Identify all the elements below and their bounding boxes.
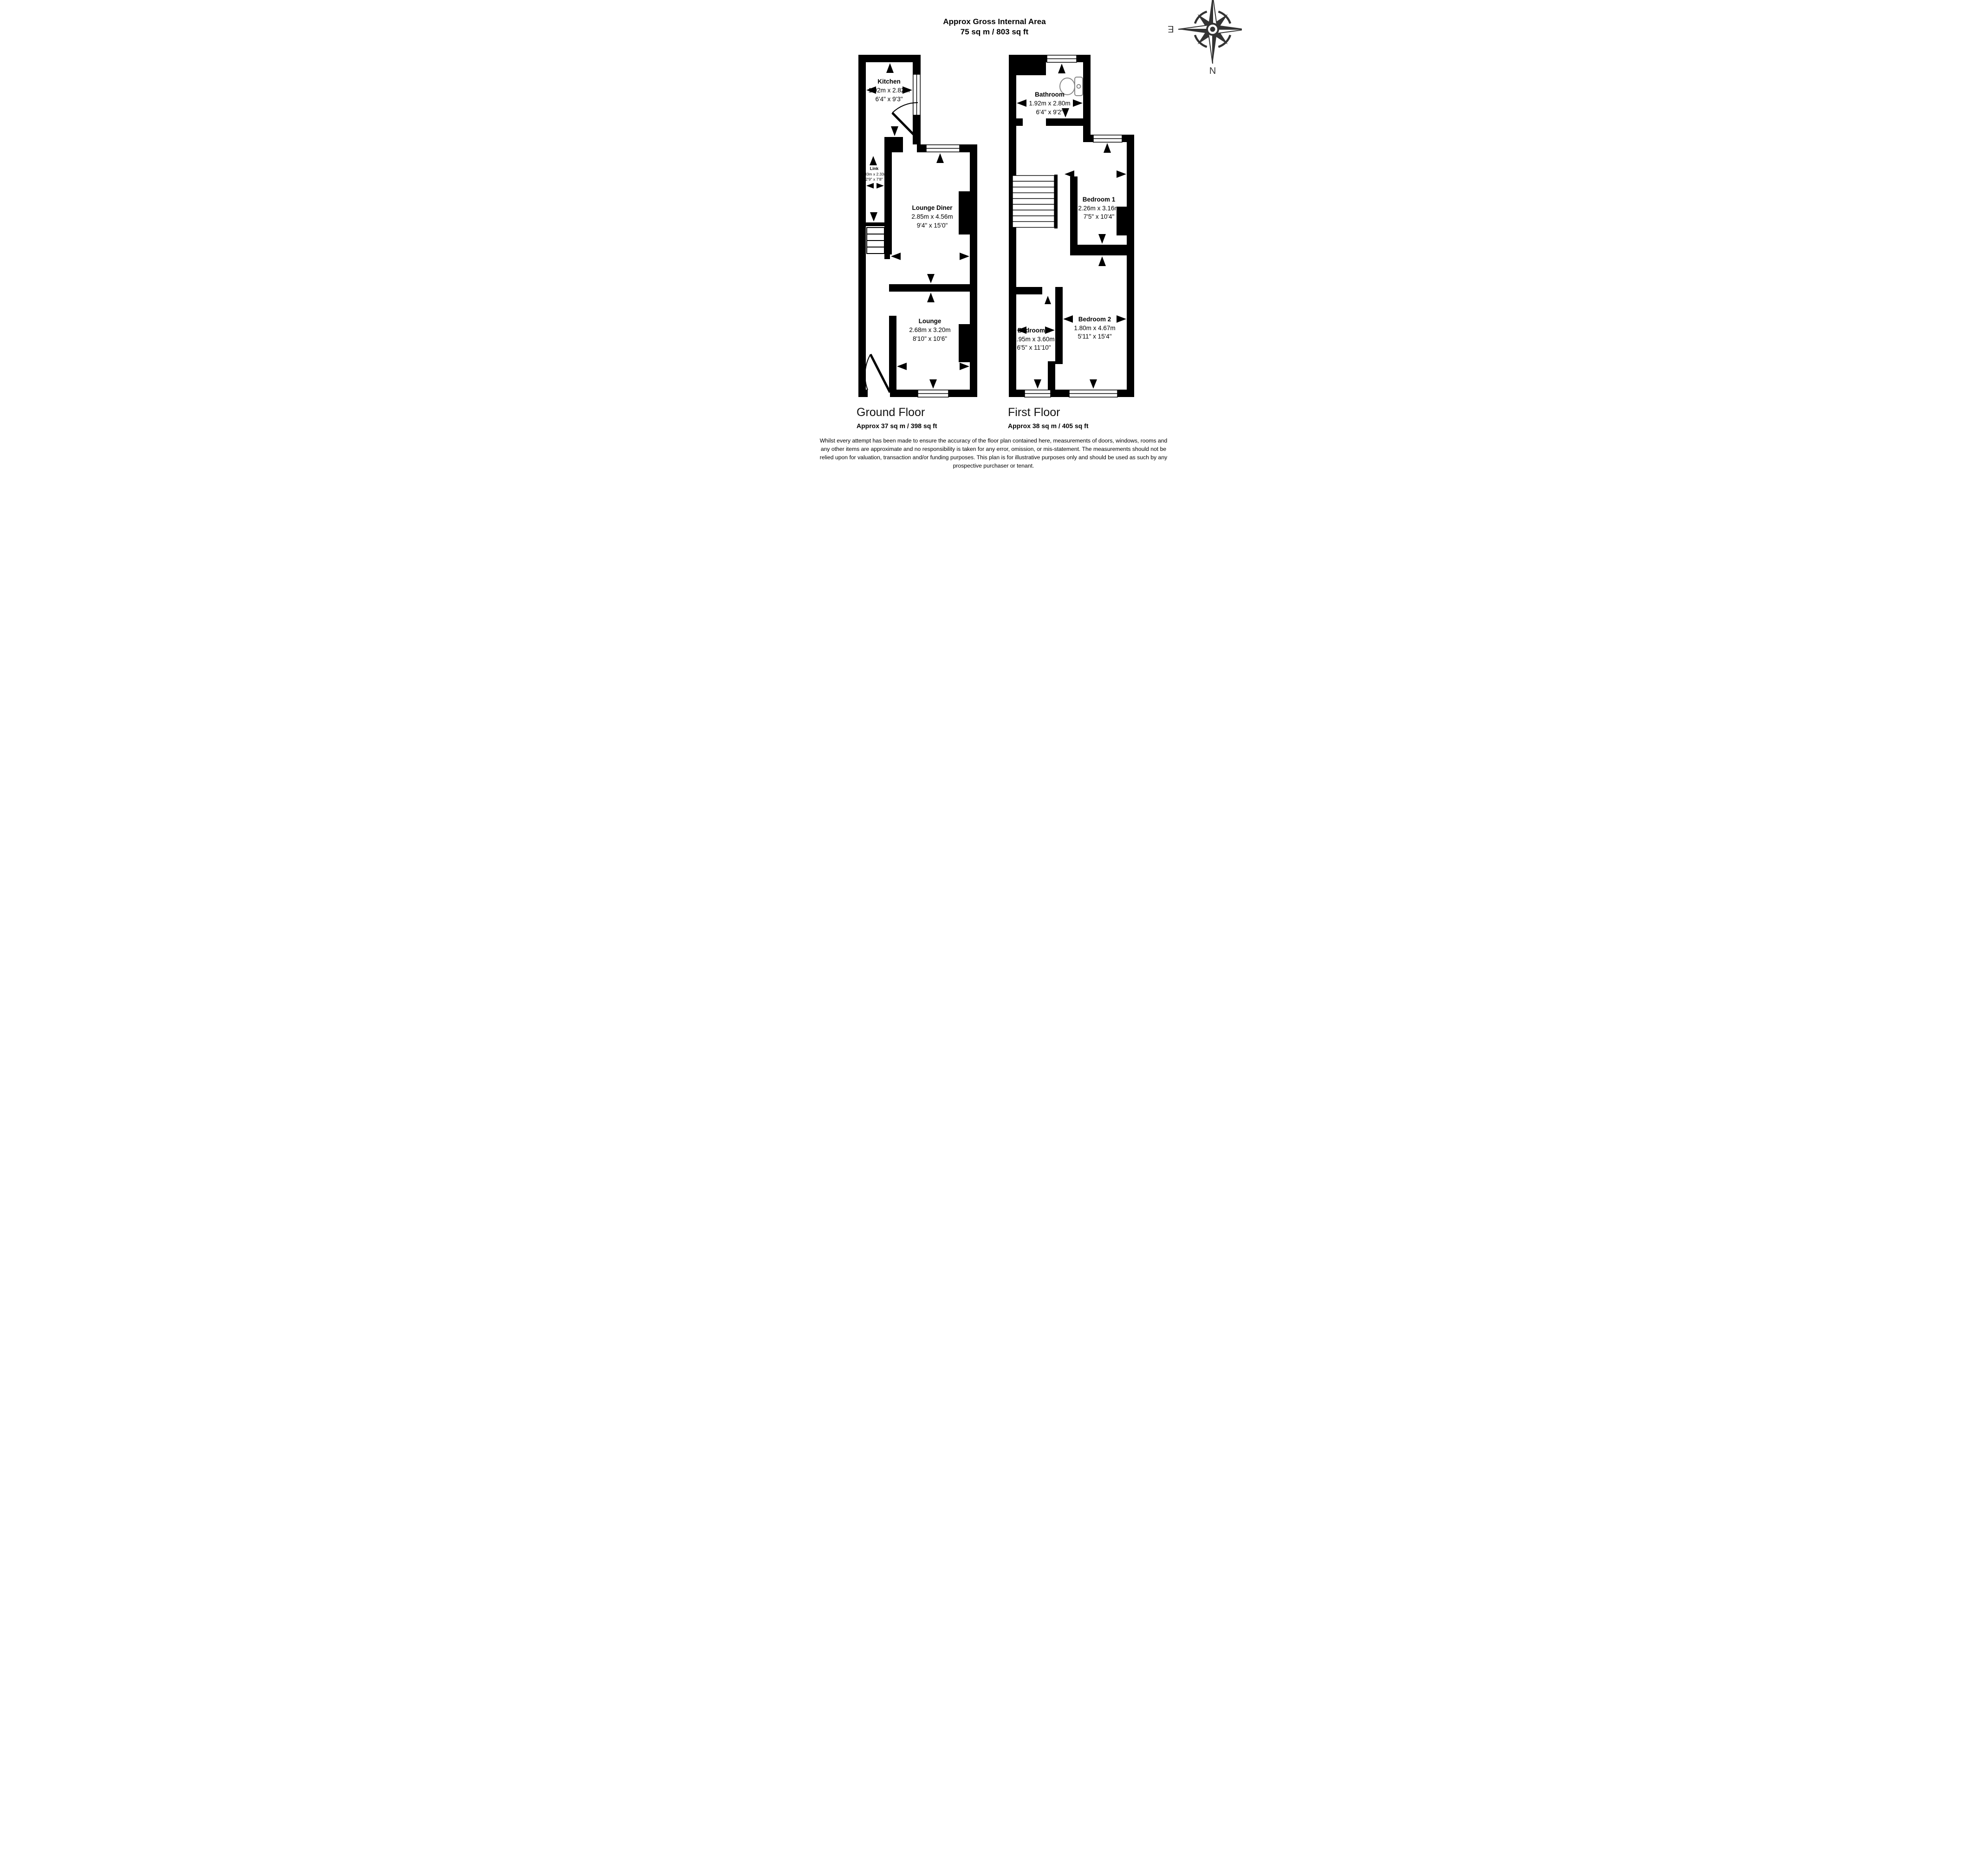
- measure-arrow-icon: [1063, 315, 1073, 323]
- page-subtitle: 75 sq m / 803 sq ft: [961, 27, 1029, 36]
- measure-arrow-icon: [1098, 256, 1106, 266]
- lounge-diner-dimensions-imperial: 9'4" x 15'0": [917, 222, 948, 229]
- ground-floor-stairs-icon: [867, 228, 884, 254]
- measure-arrow-icon: [897, 363, 907, 370]
- measure-arrow-icon: [886, 63, 894, 73]
- bedroom1-dimensions-metric: 2.26m x 3.16m: [1078, 205, 1119, 212]
- disclaimer: Whilst every attempt has been made to en…: [820, 437, 1168, 469]
- compass-hub-dot: [1210, 27, 1215, 32]
- measure-arrow-icon: [1117, 315, 1126, 323]
- ground-floor-area: Approx 37 sq m / 398 sq ft: [857, 422, 937, 430]
- compass-east-label: E: [1168, 24, 1174, 34]
- measure-arrow-icon: [936, 153, 944, 163]
- bedroom3-label: Bedroom 3: [1018, 327, 1051, 334]
- kitchen-dimensions-imperial: 6'4" x 9'3": [875, 96, 903, 103]
- measure-arrow-icon: [891, 253, 901, 260]
- measure-arrow-icon: [1104, 143, 1111, 153]
- disclaimer-line-3: relied upon for valuation, transaction a…: [820, 454, 1168, 461]
- lounge-window-icon: [918, 390, 948, 397]
- first-floor-title: First Floor: [1008, 406, 1060, 419]
- measure-arrow-icon: [1065, 170, 1074, 178]
- bedroom2-label: Bedroom 2: [1078, 316, 1111, 323]
- kitchen-window-icon: [913, 74, 920, 115]
- bedroom1-label: Bedroom 1: [1083, 196, 1116, 203]
- bedroom2-dimensions-metric: 1.80m x 4.67m: [1074, 325, 1115, 332]
- bedroom3-dimensions-imperial: 6'5" x 11'10": [1017, 344, 1051, 351]
- first-floor-area: Approx 38 sq m / 405 sq ft: [1008, 422, 1089, 430]
- floorplan-page: Approx Gross Internal Area 75 sq m / 803…: [745, 0, 1242, 469]
- measure-arrow-icon: [1017, 99, 1026, 107]
- link-label: Link: [870, 166, 879, 171]
- measure-arrow-icon: [927, 274, 935, 283]
- measure-arrow-icon: [891, 126, 898, 136]
- lounge-diner-label: Lounge Diner: [912, 204, 953, 211]
- floorplan-canvas: Approx Gross Internal Area 75 sq m / 803…: [745, 0, 1242, 469]
- measure-arrow-icon: [1058, 64, 1065, 73]
- ground-floor-plan: Kitchen 1.92m x 2.82m 6'4" x 9'3" Link 0…: [858, 55, 977, 397]
- measure-arrow-icon: [1045, 296, 1051, 304]
- ground-floor-title: Ground Floor: [857, 406, 925, 419]
- bathroom-window-icon: [1047, 55, 1077, 62]
- compass-north-label: N: [1209, 65, 1216, 75]
- lounge-dimensions-imperial: 8'10" x 10'6": [913, 335, 947, 342]
- bedroom1-window-icon: [1093, 135, 1122, 142]
- measure-arrow-icon: [1098, 234, 1106, 244]
- bedroom3-dimensions-metric: 1.95m x 3.60m: [1013, 336, 1054, 343]
- bathroom-dimensions-metric: 1.92m x 2.80m: [1029, 100, 1070, 107]
- bedroom1-dimensions-imperial: 7'5" x 10'4": [1084, 213, 1115, 220]
- bedroom2-window-icon: [1069, 390, 1117, 397]
- page-title: Approx Gross Internal Area: [943, 17, 1046, 26]
- link-dimensions-metric: 0.83m x 2.33m: [861, 172, 887, 176]
- measure-arrow-icon: [1117, 170, 1126, 178]
- kitchen-dimensions-metric: 1.92m x 2.82m: [868, 87, 909, 94]
- disclaimer-line-1: Whilst every attempt has been made to en…: [820, 437, 1168, 444]
- measure-arrow-icon: [1090, 379, 1097, 389]
- compass-icon: N E S W: [1168, 0, 1242, 75]
- measure-arrow-icon: [927, 293, 935, 302]
- kitchen-label: Kitchen: [877, 78, 901, 85]
- front-door-icon: [865, 354, 890, 392]
- lounge-dimensions-metric: 2.68m x 3.20m: [909, 326, 950, 333]
- bedroom2-dimensions-imperial: 5'11" x 15'4": [1078, 333, 1111, 340]
- link-dimensions-imperial: 2'9" x 7'8": [865, 177, 883, 182]
- first-floor-plan: Bathroom 1.92m x 2.80m 6'4" x 9'2" Bedro…: [1009, 55, 1134, 397]
- bedroom3-window-icon: [1025, 390, 1051, 397]
- lounge-diner-window-icon: [926, 145, 960, 152]
- lounge-diner-dimensions-metric: 2.85m x 4.56m: [911, 213, 953, 220]
- measure-arrow-icon: [1073, 99, 1083, 107]
- bathroom-label: Bathroom: [1035, 91, 1065, 98]
- measure-arrow-icon: [929, 379, 937, 389]
- measure-arrow-icon: [870, 156, 877, 165]
- disclaimer-line-2: any other items are approximate and no r…: [821, 446, 1166, 452]
- measure-arrow-icon: [1034, 379, 1041, 389]
- first-floor-stairs-icon: [1013, 175, 1058, 228]
- lounge-label: Lounge: [919, 318, 942, 325]
- measure-arrow-icon: [866, 183, 874, 189]
- bathroom-dimensions-imperial: 6'4" x 9'2": [1036, 109, 1063, 116]
- measure-arrow-icon: [960, 253, 969, 260]
- measure-arrow-icon: [877, 183, 884, 189]
- disclaimer-line-4: prospective purchaser or tenant.: [953, 462, 1034, 469]
- measure-arrow-icon: [870, 212, 877, 221]
- measure-arrow-icon: [960, 363, 969, 370]
